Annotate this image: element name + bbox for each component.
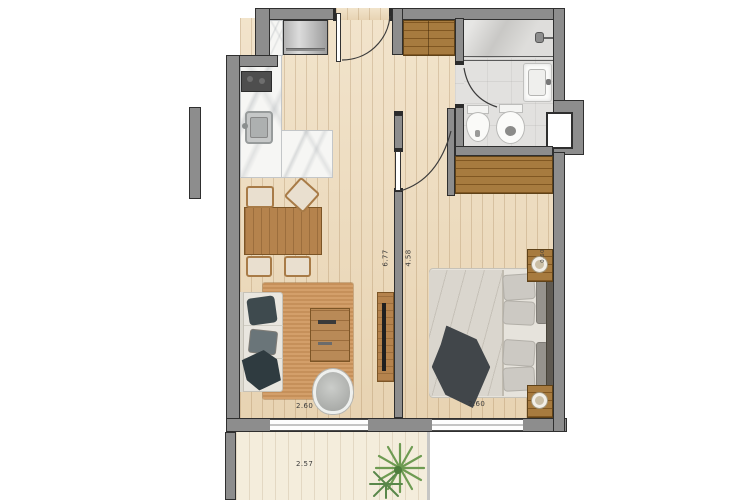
dining-chair (246, 186, 274, 208)
terrace-left-wall (225, 432, 236, 500)
mid-wall-top (392, 8, 403, 55)
dining-chair (246, 256, 272, 277)
shower-glass-divider (463, 56, 553, 61)
entry-threshold-floor (336, 8, 392, 20)
bedroom-door-leaf (395, 151, 401, 191)
vanity-basin (528, 69, 546, 96)
dining-chair (284, 256, 311, 277)
lounge-chair (313, 369, 353, 414)
dimension-label-nightstand: 0.60 (540, 249, 546, 263)
sofa-cushion-line (244, 325, 283, 326)
bathroom-door-threshold (455, 64, 464, 106)
dimension-label-living-length: 6.77 (382, 249, 390, 266)
mid-wall-lower (394, 190, 403, 418)
dining-table (244, 207, 322, 255)
top-wall-right (392, 8, 565, 20)
mid-wall-upper (394, 115, 403, 152)
kitchen-counter-top (268, 20, 283, 56)
neighbor-wall-stub (189, 107, 201, 199)
cooktop (241, 71, 272, 92)
tv (382, 303, 386, 371)
refrigerator-handle (286, 48, 325, 51)
bathroom-door-jamb (455, 61, 464, 65)
entry-closet-divider (428, 21, 429, 55)
coffee-table-book (318, 342, 332, 345)
dimension-label-bedroom-width: 2.60 (468, 400, 485, 408)
terrace-right-edge (427, 432, 430, 500)
terrace-floor (236, 432, 428, 500)
bathroom-left-wall-bottom (455, 105, 464, 150)
dimension-label-terrace-width: 2.57 (296, 460, 313, 468)
coffee-table (310, 308, 350, 362)
entry-closet (403, 20, 455, 56)
bathroom-left-wall-top (455, 18, 464, 65)
wardrobe-side-wall (447, 108, 455, 196)
cooktop-burner (247, 76, 253, 82)
bidet-faucet-icon (475, 130, 480, 137)
vanity-faucet-icon (546, 79, 551, 85)
table-lamp-icon (532, 393, 547, 408)
top-left-corner-column (255, 8, 270, 57)
right-wall-bottom (553, 152, 565, 432)
floor-plan: 2.60 2.60 2.57 6.77 4.58 0.60 (0, 0, 735, 500)
cooktop-burner (259, 78, 265, 84)
shower-head-icon (535, 32, 544, 43)
entry-door-leaf (336, 13, 341, 62)
right-wall-top (553, 8, 565, 108)
entry-door-jamb (389, 8, 392, 21)
left-wall (226, 55, 240, 432)
dimension-label-living-width: 2.60 (296, 402, 313, 410)
bedroom-window (432, 419, 523, 431)
kitchen-sink-basin (250, 117, 268, 138)
kitchen-counter-peninsula (281, 130, 333, 178)
bedroom-door-jamb (394, 111, 403, 115)
bathroom-bottom-wall (455, 146, 553, 156)
dimension-label-bedroom-length: 4.58 (405, 249, 413, 266)
duct-shaft (546, 112, 573, 149)
living-window (270, 419, 368, 431)
toilet-seat-center (505, 126, 516, 136)
sofa-pillow (246, 295, 277, 326)
kitchen-faucet-icon (242, 123, 248, 129)
bed-pillow (502, 339, 536, 367)
bed-pillow (502, 300, 535, 326)
bathroom-door-jamb (455, 104, 464, 108)
bedroom-wardrobe (455, 156, 553, 194)
coffee-table-book (318, 320, 336, 324)
